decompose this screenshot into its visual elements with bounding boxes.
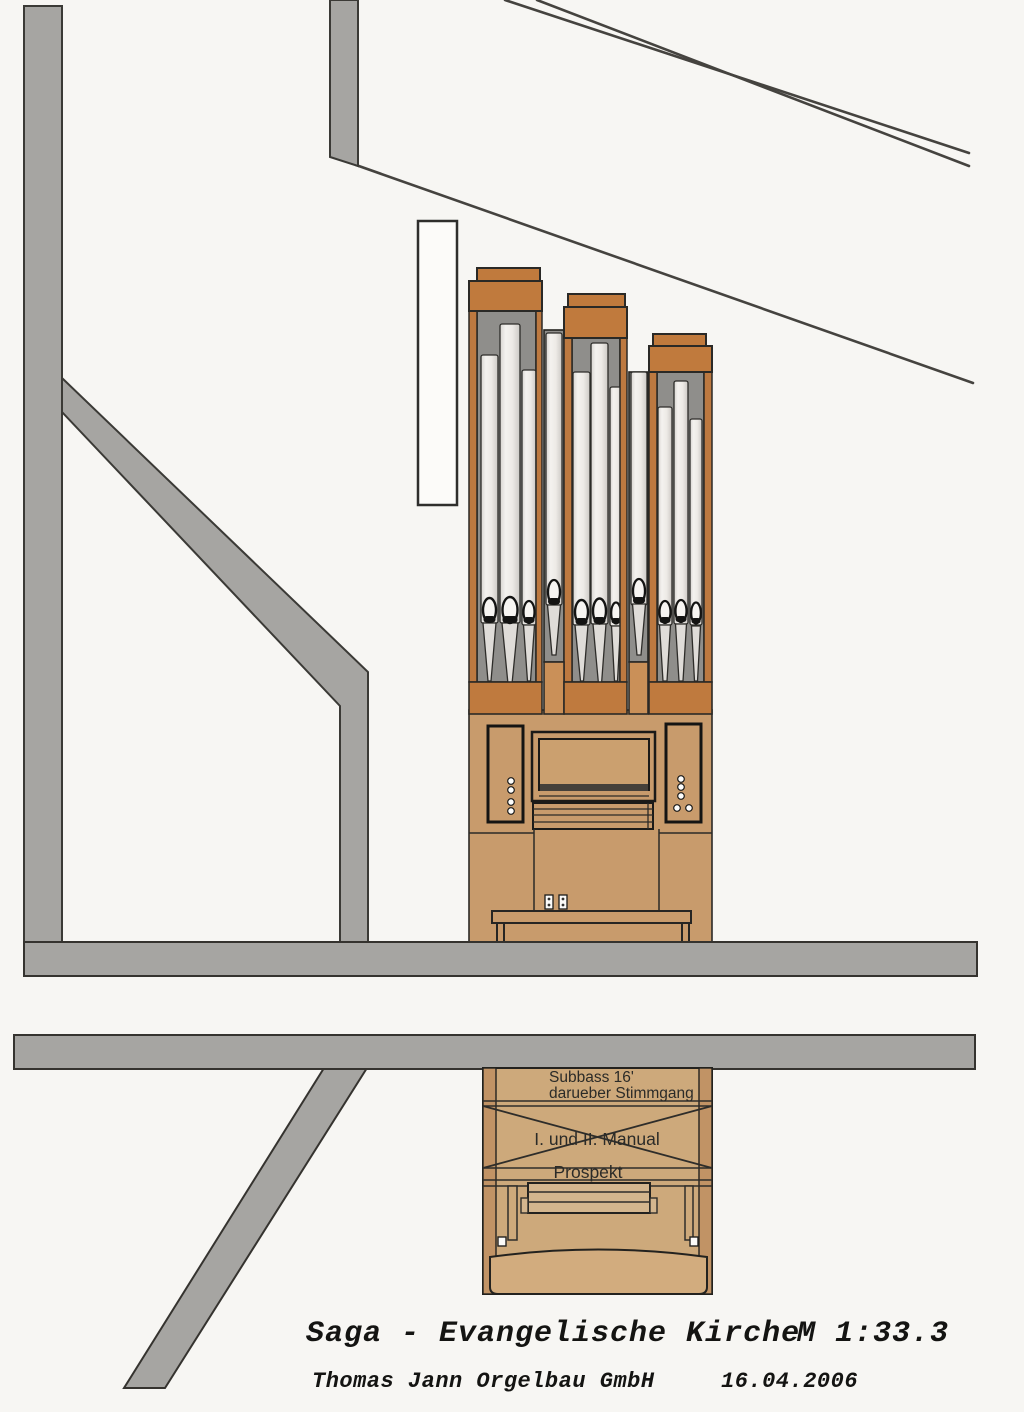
base-plinth <box>490 1250 707 1295</box>
keyboard-stack <box>533 803 653 829</box>
gallery-beam-upper <box>24 942 977 976</box>
label-subbass-line1: Subbass 16' <box>549 1069 634 1086</box>
left-tower-cap <box>469 281 542 311</box>
left-wall-column <box>24 6 62 956</box>
label-prospekt: Prospekt <box>553 1162 622 1182</box>
label-subbass-line2: darueber Stimmgang <box>549 1085 694 1102</box>
organ-upper-case <box>469 268 712 944</box>
base-foot-left <box>498 1237 506 1246</box>
gallery-beam-lower <box>14 1035 975 1069</box>
right-tower-cap-molding <box>653 334 706 346</box>
roof-post <box>330 0 358 166</box>
facade-pipe <box>481 355 498 681</box>
base-foot-right <box>690 1237 698 1246</box>
label-manuals: I. und II. Manual <box>534 1129 660 1149</box>
facade-pipe <box>500 324 520 684</box>
right-tower-cap <box>649 346 712 372</box>
right-stop-jamb <box>666 724 701 822</box>
facade-pipe <box>631 372 647 655</box>
facade-pipe <box>690 419 702 681</box>
facade-pipe <box>573 372 590 681</box>
facade-pipe <box>674 381 688 681</box>
bench-top <box>492 911 691 923</box>
middle-tower-cap-molding <box>568 294 625 307</box>
drawing-company: Thomas Jann Orgelbau GmbH <box>312 1369 655 1394</box>
organ-technical-drawing: Subbass 16' darueber Stimmgang I. und II… <box>0 0 1024 1412</box>
organ-lower-case: Subbass 16' darueber Stimmgang I. und II… <box>483 1068 712 1294</box>
facade-pipe <box>546 333 562 655</box>
facade-pipe <box>658 407 672 681</box>
drawing-date: 16.04.2006 <box>721 1369 858 1394</box>
bench-leg-left <box>497 923 504 944</box>
facade-pipe <box>591 343 608 684</box>
facade-pipe <box>522 370 536 681</box>
drawing-title: Saga - Evangelische Kirche <box>306 1317 800 1351</box>
middle-tower-cap <box>564 307 627 338</box>
left-tower-cap-molding <box>477 268 540 281</box>
left-stop-jamb <box>488 726 523 822</box>
organ-technical-drawing-page: Subbass 16' darueber Stimmgang I. und II… <box>0 0 1024 1412</box>
window-opening <box>418 221 457 505</box>
bench-leg-right <box>682 923 689 944</box>
music-desk-panel <box>539 739 649 790</box>
music-desk-shadow <box>540 784 648 791</box>
drawing-scale: M 1:33.3 <box>796 1317 949 1351</box>
keyboard-underside <box>528 1183 650 1213</box>
